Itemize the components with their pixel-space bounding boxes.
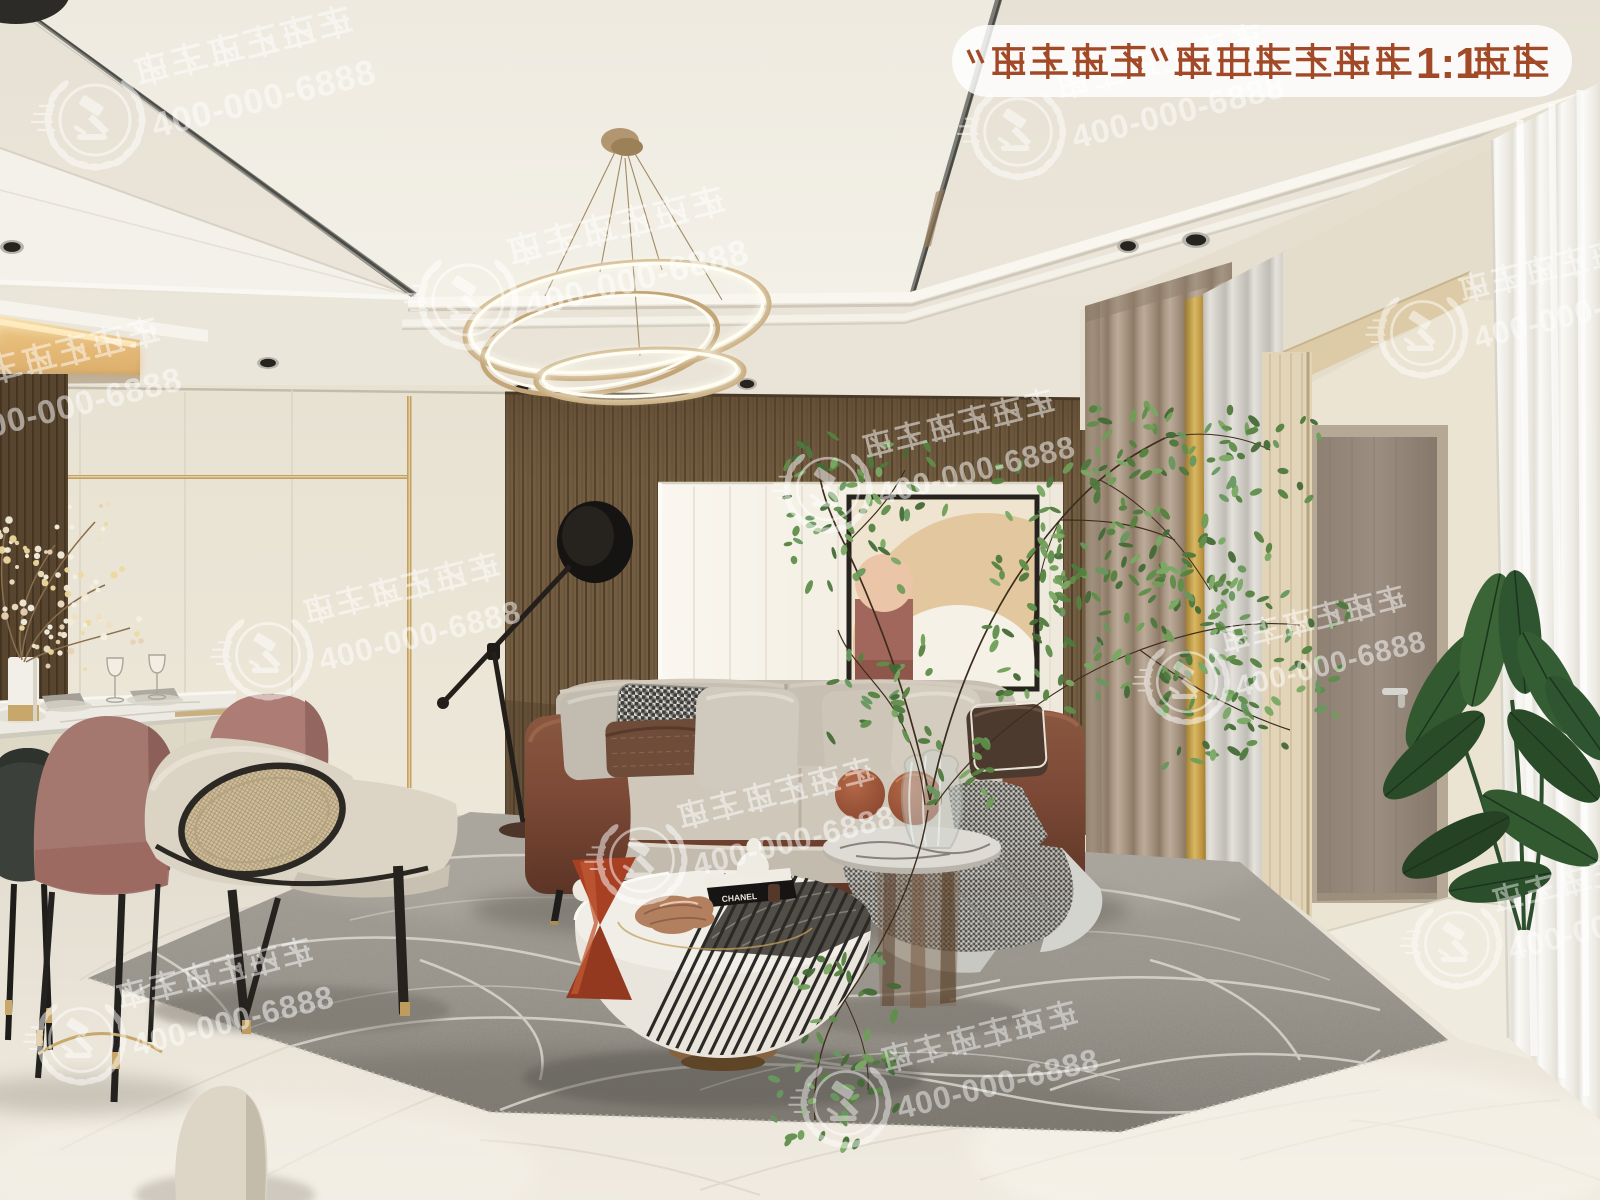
svg-text:1:1: 1:1: [1416, 39, 1480, 88]
